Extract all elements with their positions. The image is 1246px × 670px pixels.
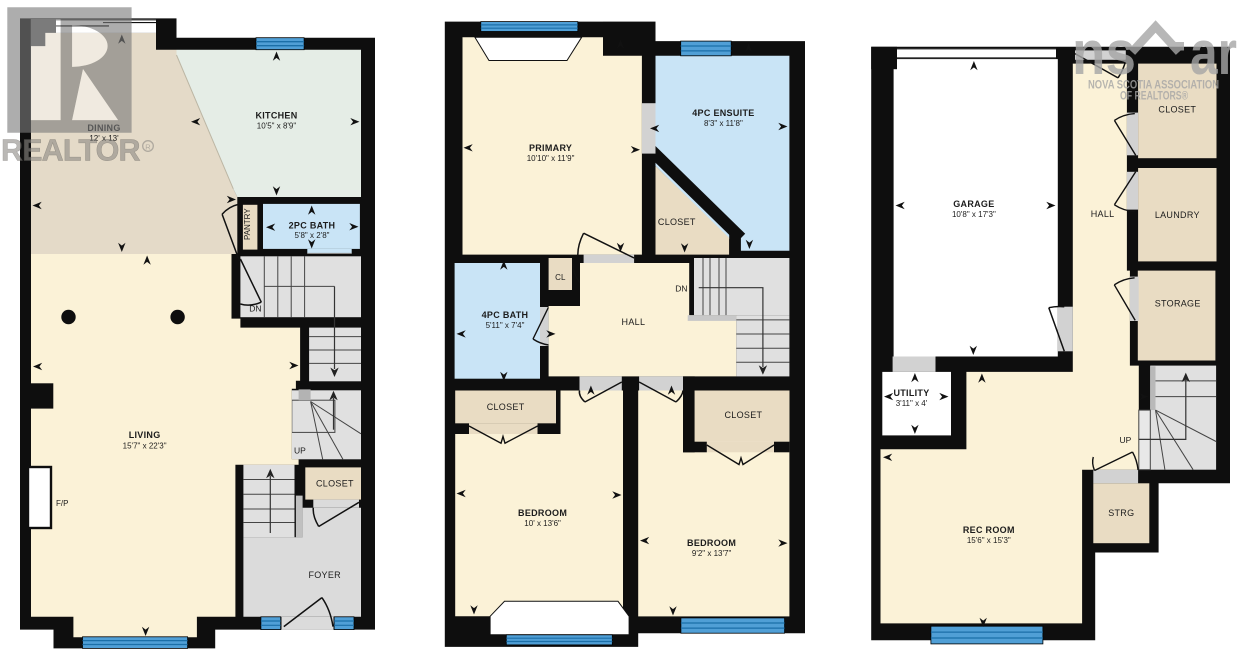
svg-text:CLOSET: CLOSET: [316, 479, 354, 489]
svg-text:FOYER: FOYER: [308, 570, 341, 580]
svg-text:PANTRY: PANTRY: [243, 208, 252, 240]
svg-text:15'7" x 22'3": 15'7" x 22'3": [123, 442, 167, 451]
svg-text:DN: DN: [249, 304, 261, 314]
svg-text:UTILITY: UTILITY: [893, 388, 929, 398]
svg-text:R: R: [145, 142, 151, 151]
svg-text:CL: CL: [555, 273, 566, 282]
svg-text:BEDROOM: BEDROOM: [518, 508, 567, 518]
svg-text:GARAGE: GARAGE: [953, 199, 994, 209]
svg-text:OF REALTORS®: OF REALTORS®: [1120, 89, 1188, 103]
svg-text:STORAGE: STORAGE: [1155, 299, 1201, 309]
svg-text:10'5" x 8'9": 10'5" x 8'9": [257, 122, 297, 131]
svg-text:CLOSET: CLOSET: [487, 402, 525, 412]
svg-text:5'11" x 7'4": 5'11" x 7'4": [486, 321, 525, 330]
svg-text:4PC ENSUITE: 4PC ENSUITE: [692, 108, 754, 118]
svg-text:9'2" x 13'7": 9'2" x 13'7": [692, 549, 732, 558]
svg-text:BEDROOM: BEDROOM: [687, 538, 736, 548]
svg-text:2PC BATH: 2PC BATH: [289, 221, 336, 231]
svg-text:10'10" x 11'9": 10'10" x 11'9": [527, 154, 575, 163]
svg-text:15'6" x 15'3": 15'6" x 15'3": [967, 536, 1011, 545]
svg-text:PRIMARY: PRIMARY: [529, 143, 572, 153]
svg-text:KITCHEN: KITCHEN: [255, 111, 297, 121]
svg-text:LAUNDRY: LAUNDRY: [1155, 210, 1200, 220]
svg-text:4PC BATH: 4PC BATH: [482, 310, 529, 320]
svg-text:STRG: STRG: [1108, 508, 1134, 518]
svg-text:REC ROOM: REC ROOM: [963, 525, 1015, 535]
svg-text:HALL: HALL: [622, 317, 646, 327]
svg-text:5'8" x 2'8": 5'8" x 2'8": [295, 231, 330, 240]
svg-text:8'3" x 11'8": 8'3" x 11'8": [704, 119, 743, 128]
svg-text:UP: UP: [294, 445, 306, 455]
svg-text:UP: UP: [1119, 435, 1131, 445]
svg-text:10'8" x 17'3": 10'8" x 17'3": [952, 210, 996, 219]
svg-text:CLOSET: CLOSET: [658, 217, 696, 227]
svg-text:10' x 13'6": 10' x 13'6": [524, 519, 561, 528]
svg-text:F/P: F/P: [56, 499, 68, 508]
svg-text:DN: DN: [675, 284, 687, 294]
svg-text:REALTOR: REALTOR: [1, 134, 141, 168]
svg-text:CLOSET: CLOSET: [724, 410, 762, 420]
svg-text:HALL: HALL: [1091, 209, 1115, 219]
svg-text:CLOSET: CLOSET: [1158, 105, 1196, 115]
svg-text:LIVING: LIVING: [129, 430, 161, 440]
svg-text:3'11" x 4': 3'11" x 4': [896, 399, 928, 408]
